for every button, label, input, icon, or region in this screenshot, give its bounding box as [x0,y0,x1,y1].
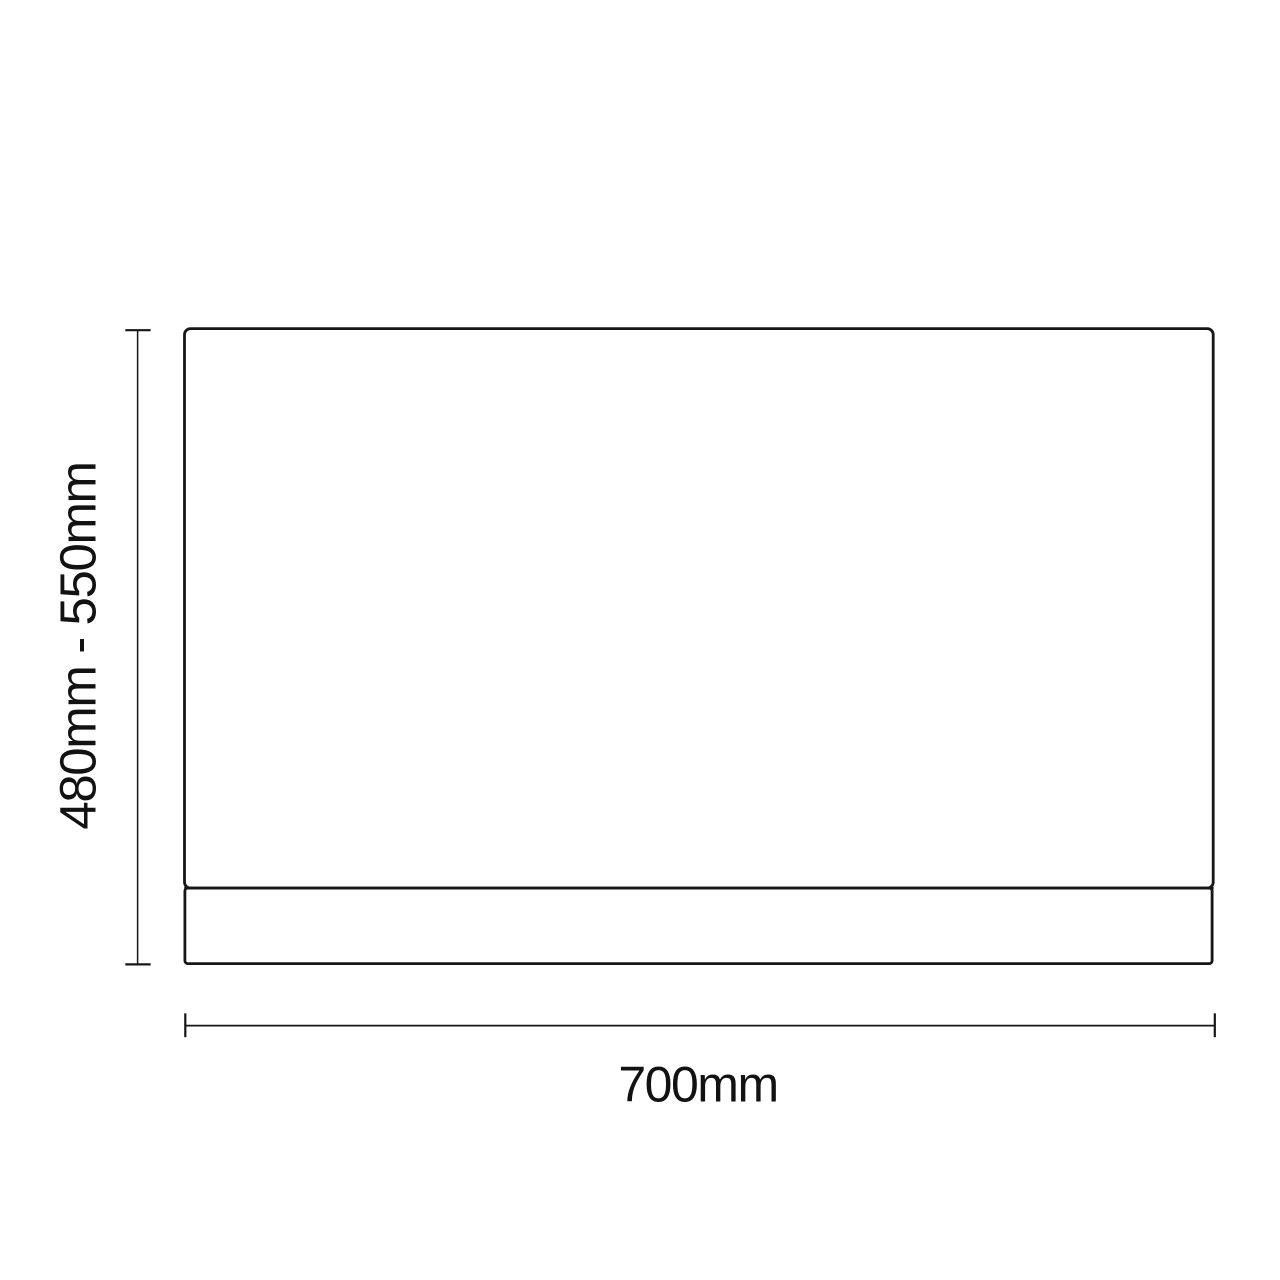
svg-text:700mm: 700mm [618,1057,777,1113]
svg-text:480mm - 550mm: 480mm - 550mm [50,462,107,829]
